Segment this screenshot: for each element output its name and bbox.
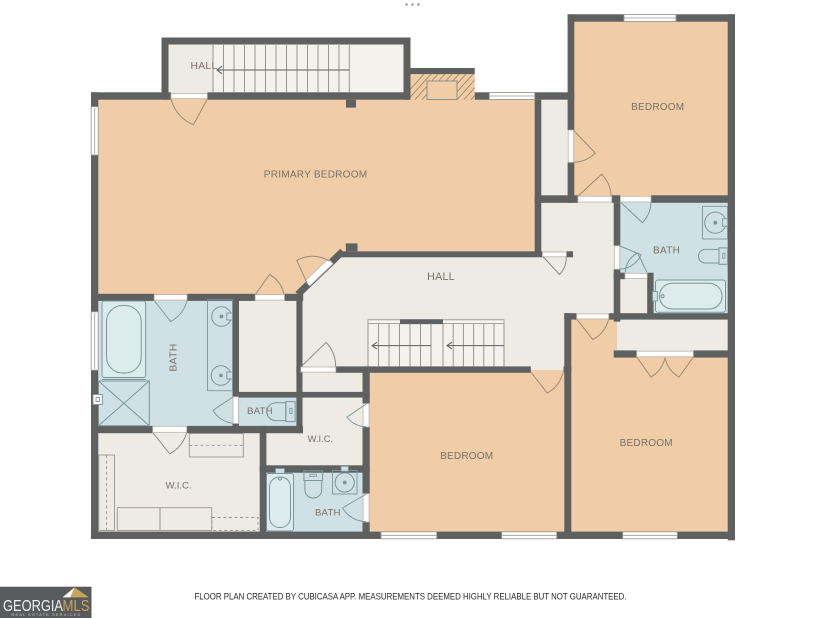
svg-text:REAL ESTATE SERVICES: REAL ESTATE SERVICES: [12, 612, 81, 617]
svg-text:BATH: BATH: [653, 245, 680, 256]
svg-text:BATH: BATH: [315, 507, 341, 518]
svg-text:W.I.C.: W.I.C.: [308, 433, 334, 444]
svg-text:FLOOR PLAN CREATED BY CUBICASA: FLOOR PLAN CREATED BY CUBICASA APP. MEAS…: [195, 590, 627, 601]
svg-text:BEDROOM: BEDROOM: [620, 438, 673, 449]
svg-text:W.I.C.: W.I.C.: [166, 481, 192, 492]
svg-text:HALL: HALL: [191, 61, 218, 72]
svg-text:BEDROOM: BEDROOM: [631, 102, 684, 113]
svg-text:PRIMARY BEDROOM: PRIMARY BEDROOM: [264, 170, 368, 181]
svg-text:HALL: HALL: [427, 271, 455, 283]
svg-text:BATH: BATH: [169, 343, 180, 371]
svg-text:BATH: BATH: [247, 406, 273, 417]
svg-text:BEDROOM: BEDROOM: [440, 451, 493, 462]
